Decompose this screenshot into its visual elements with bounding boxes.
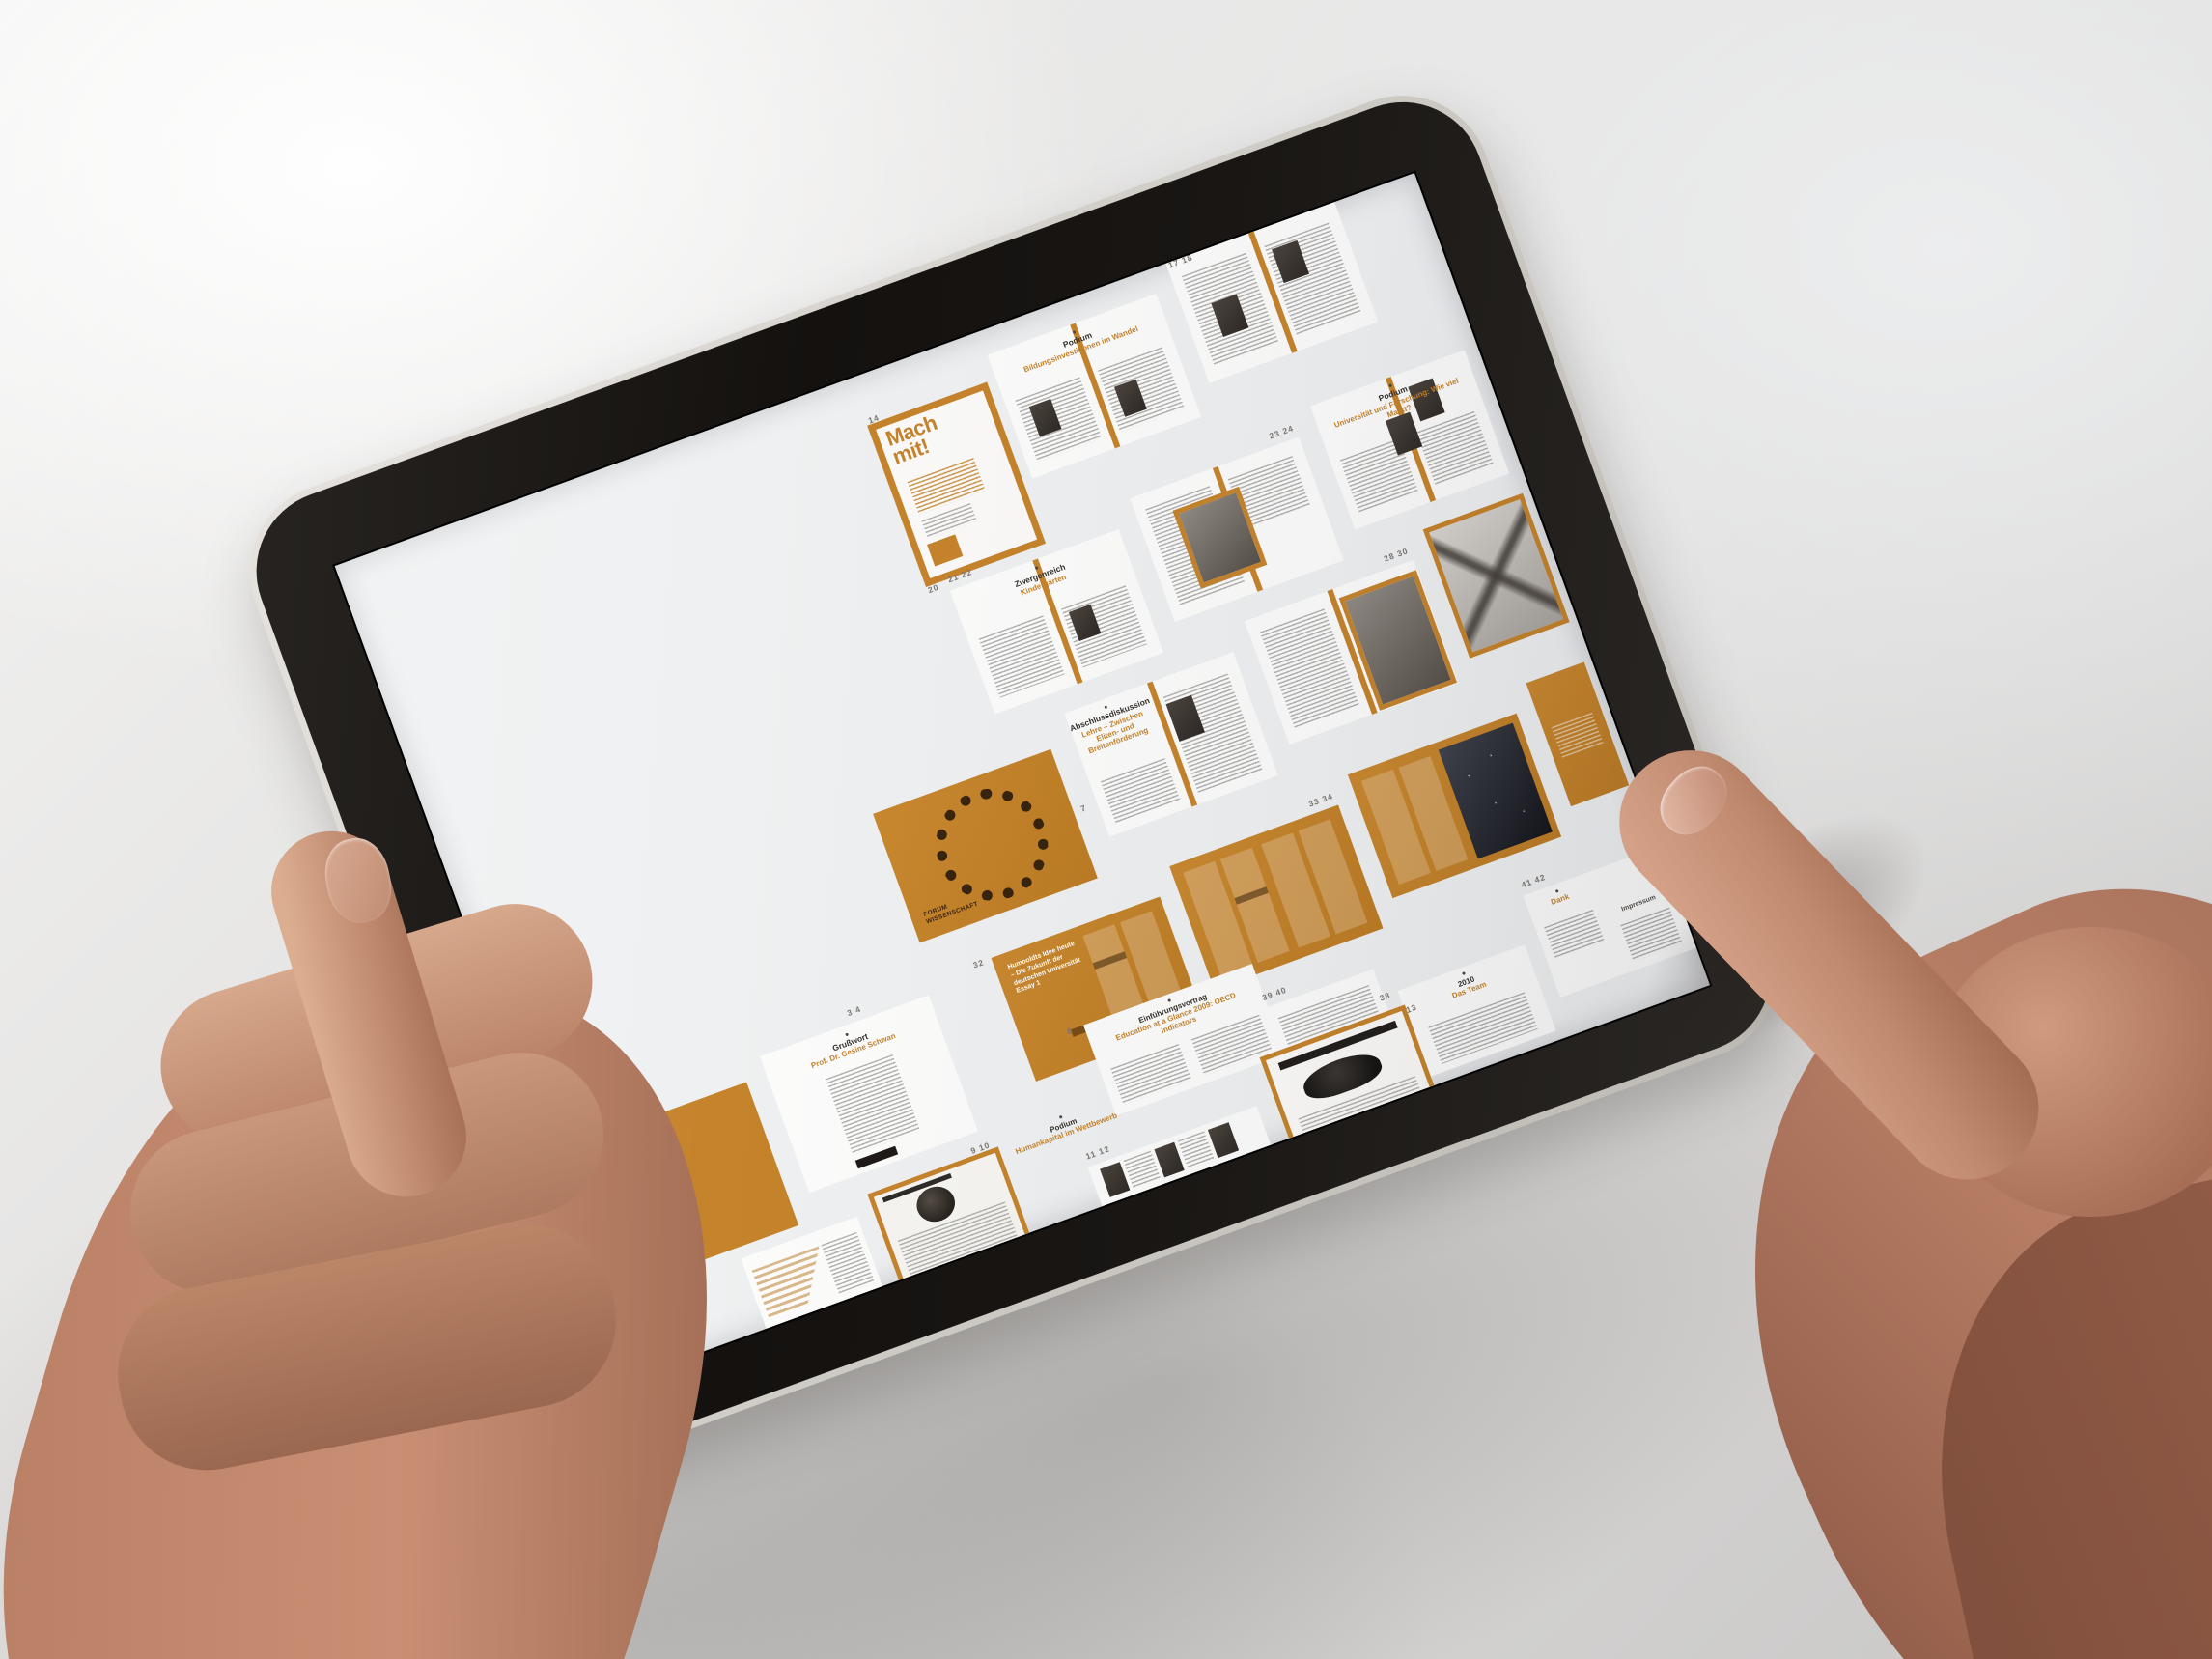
spread-podium-universitaet[interactable]: PodiumUniversität und Forschung: Wie vie… bbox=[1310, 350, 1509, 529]
spread-23-24[interactable]: 23 24 bbox=[1130, 437, 1343, 622]
spread-abschlussdiskussion[interactable]: AbschlussdiskussionLehre – Zwischen Elit… bbox=[1064, 652, 1277, 836]
cover-intro-text bbox=[908, 458, 986, 515]
photo-scene: 14 20 Mach mit! PodiumBildungsinvestitio… bbox=[0, 0, 2212, 1659]
text-column bbox=[979, 615, 1065, 698]
spread-essay-33-34[interactable]: 33 34 bbox=[1169, 805, 1383, 990]
spread-28-30[interactable]: 28 30 bbox=[1245, 560, 1458, 745]
page-numbers: 39 40 bbox=[1261, 985, 1288, 1002]
page-numbers: 3 4 bbox=[846, 1004, 862, 1018]
text-column bbox=[1415, 410, 1494, 486]
cover-orange-block bbox=[927, 534, 963, 567]
page-numbers: 23 24 bbox=[1268, 423, 1295, 440]
page-number: 7 bbox=[1079, 802, 1088, 813]
page-numbers: 17 18 bbox=[1167, 252, 1194, 269]
page-architecture-x-photo[interactable] bbox=[1423, 493, 1570, 659]
page-numbers: 41 42 bbox=[1520, 872, 1547, 889]
spread-grusswort[interactable]: 3 4 GrußwortProf. Dr. Gesine Schwan bbox=[760, 996, 978, 1194]
page-number: 38 bbox=[1378, 990, 1391, 1002]
newspaper-columns bbox=[898, 1202, 1018, 1276]
page-numbers: 28 30 bbox=[1383, 546, 1410, 563]
page-number: 32 bbox=[971, 957, 985, 970]
chart-notes bbox=[822, 1232, 875, 1295]
text-column bbox=[1110, 1044, 1191, 1105]
framed-group-photo bbox=[1339, 570, 1457, 711]
spread-17-18[interactable]: 17 18 bbox=[1165, 202, 1378, 383]
photo-caption: Forum Wissenschaft bbox=[923, 890, 989, 927]
back-cover-text bbox=[1552, 713, 1604, 760]
crowd-circle-photo bbox=[931, 783, 1054, 906]
page-number: 20 bbox=[927, 582, 940, 595]
text-column bbox=[1191, 1015, 1273, 1076]
text-column bbox=[1098, 348, 1185, 433]
text-column bbox=[1101, 758, 1180, 824]
text-column bbox=[1178, 1132, 1215, 1168]
spread-essay-night-photo[interactable] bbox=[1348, 714, 1561, 898]
text-column bbox=[1124, 1151, 1161, 1188]
page-numbers: 33 34 bbox=[1307, 791, 1334, 808]
greeting-text-column bbox=[826, 1054, 921, 1155]
page-newspaper-clipping[interactable] bbox=[867, 1146, 1032, 1289]
spread-podium-bildungsinvestitionen[interactable]: PodiumBildungsinvestitionen im Wandel bbox=[988, 294, 1201, 478]
dank-title: Dank bbox=[1527, 884, 1593, 914]
impressum-title: Impressum bbox=[1620, 894, 1657, 913]
spread-people-aerial-photo[interactable]: 7 Forum Wissenschaft bbox=[873, 749, 1098, 942]
page-number: 14 bbox=[867, 412, 881, 425]
cover-title: Mach mit! bbox=[883, 413, 946, 467]
horizontal-bar-chart bbox=[752, 1246, 838, 1320]
dank-text bbox=[1544, 910, 1604, 958]
